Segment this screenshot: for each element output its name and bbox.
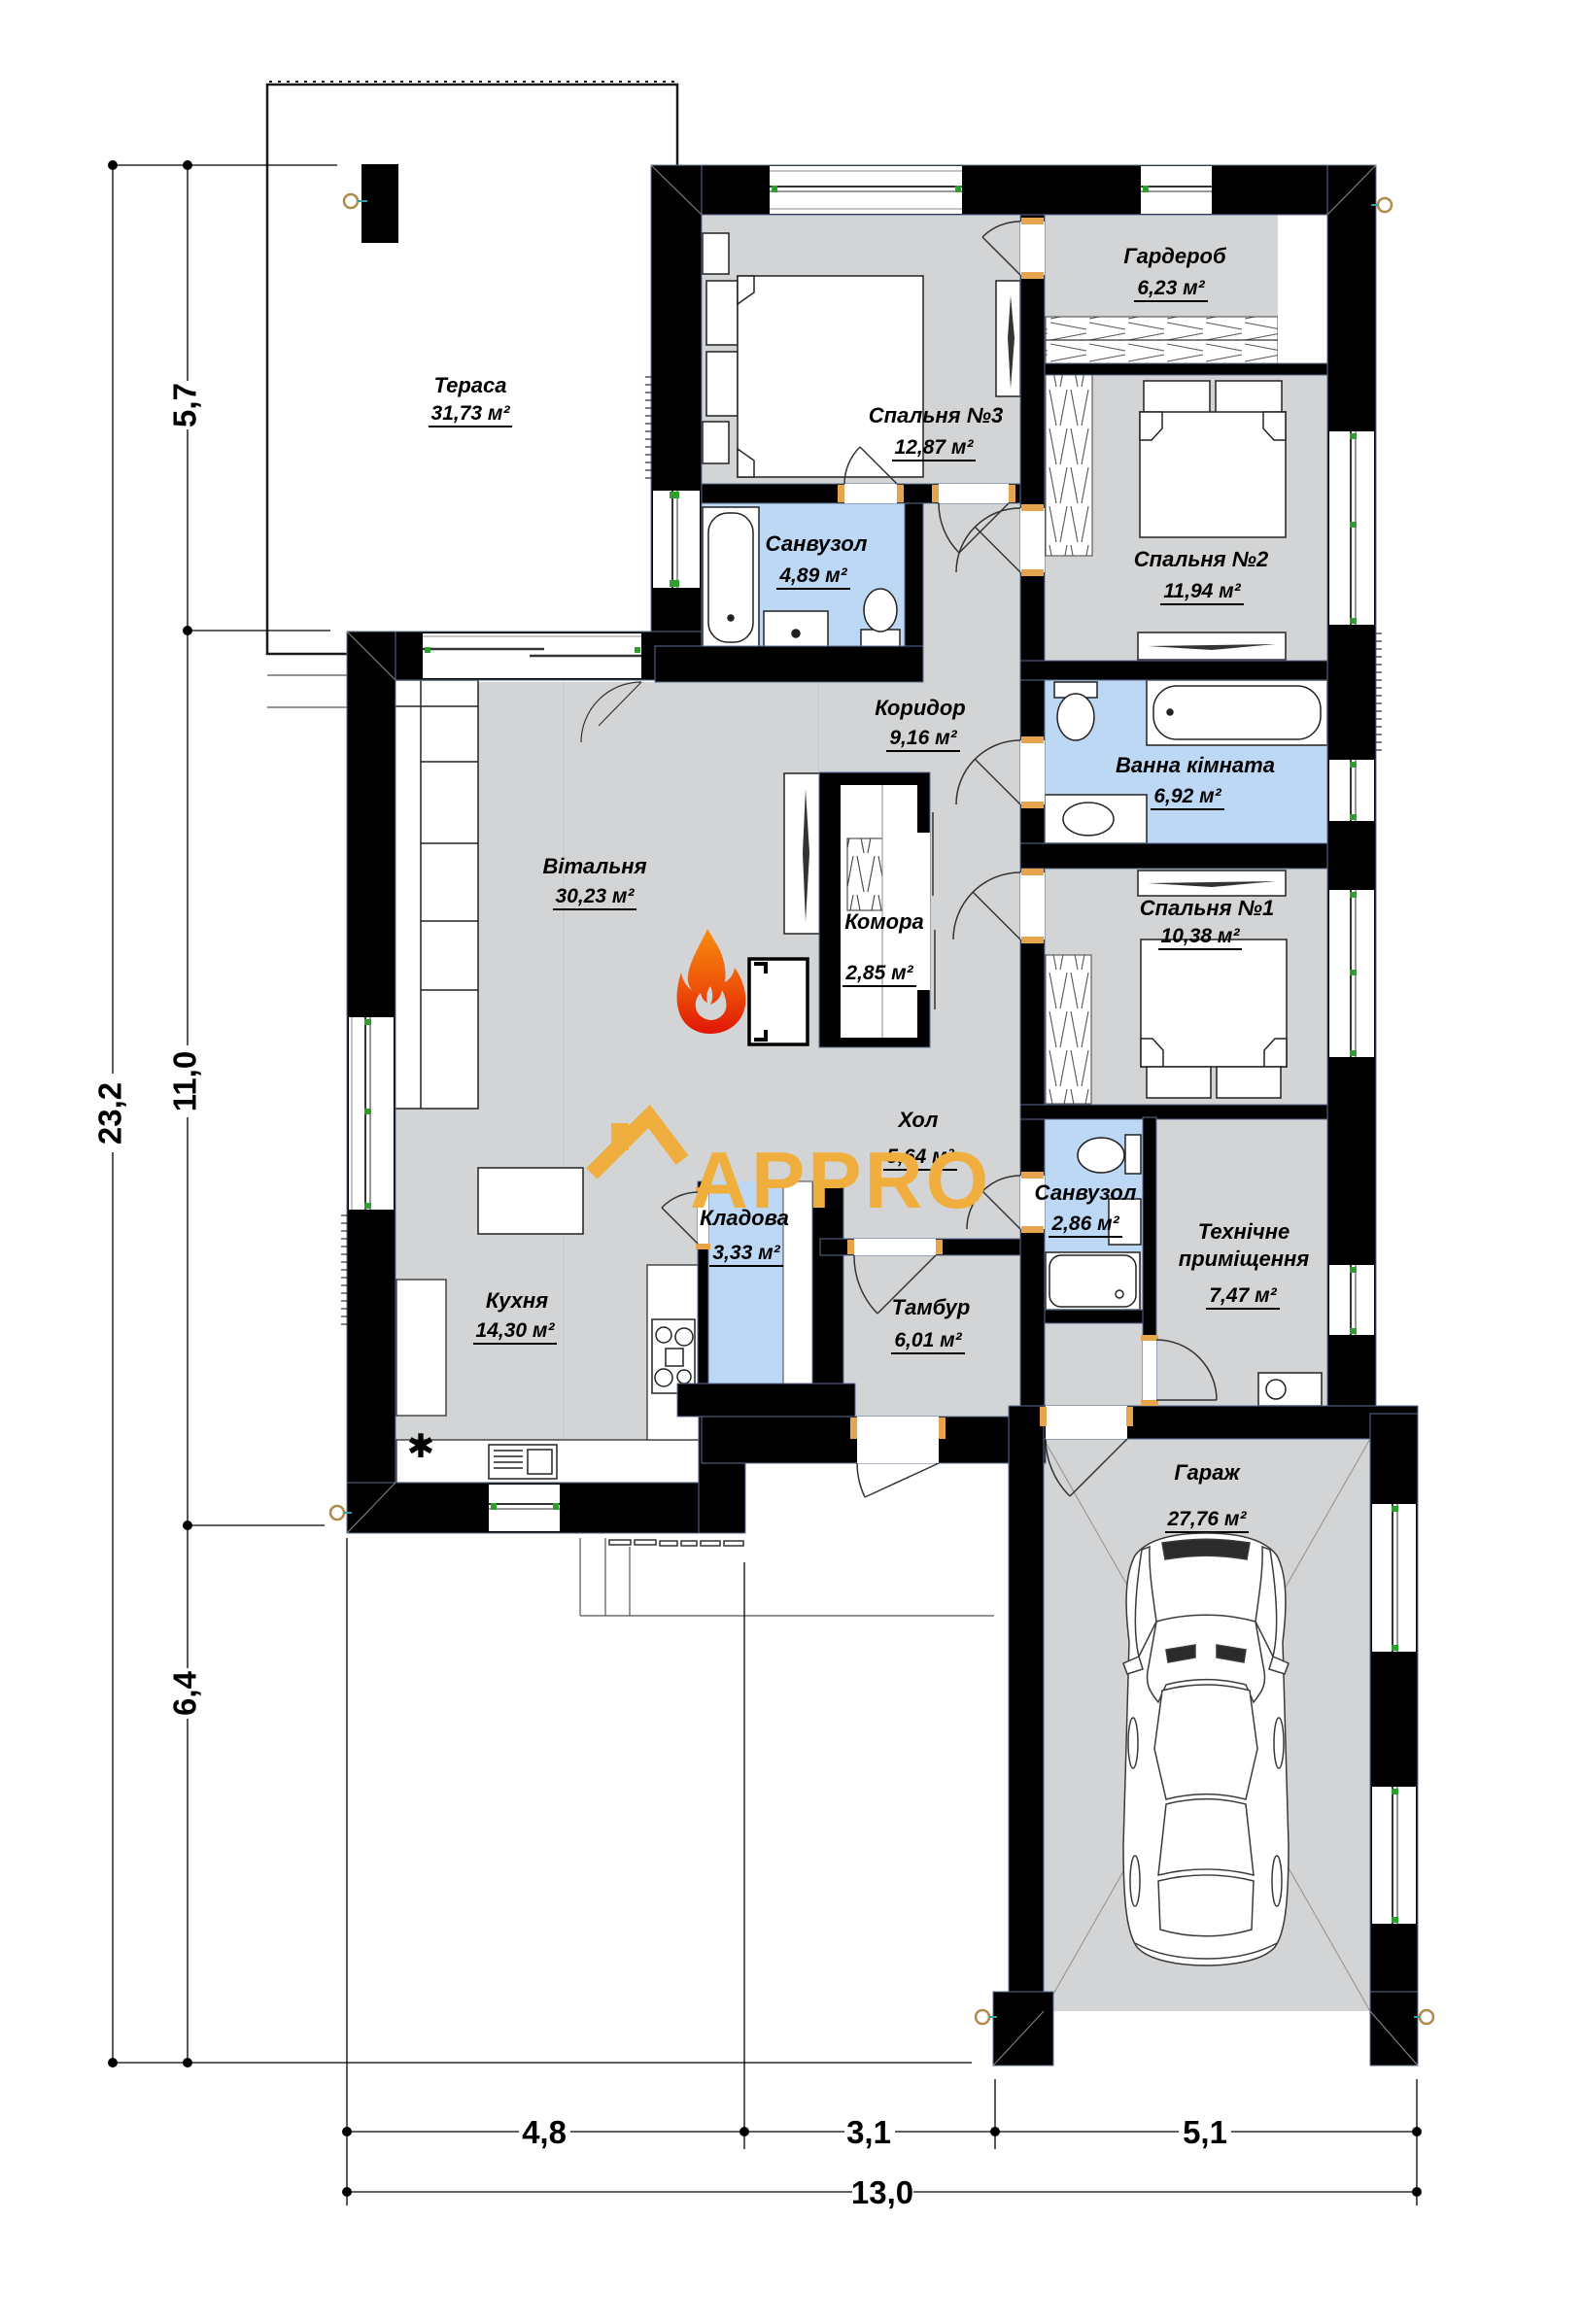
svg-text:3,1: 3,1 bbox=[846, 2114, 891, 2150]
svg-text:Тераса: Тераса bbox=[434, 373, 507, 397]
svg-text:Технічне: Технічне bbox=[1198, 1219, 1290, 1244]
svg-text:Спальня №1: Спальня №1 bbox=[1140, 896, 1274, 920]
svg-text:Ванна кімната: Ванна кімната bbox=[1116, 753, 1275, 777]
svg-text:11,94 м²: 11,94 м² bbox=[1163, 580, 1241, 602]
svg-text:Гараж: Гараж bbox=[1174, 1460, 1241, 1485]
svg-text:Спальня №2: Спальня №2 bbox=[1134, 547, 1269, 571]
svg-text:Кухня: Кухня bbox=[486, 1288, 548, 1313]
svg-text:Хол: Хол bbox=[897, 1108, 939, 1132]
svg-text:2,86 м²: 2,86 м² bbox=[1050, 1213, 1119, 1235]
svg-text:Санвузол: Санвузол bbox=[766, 531, 868, 556]
svg-text:6,92 м²: 6,92 м² bbox=[1153, 785, 1221, 807]
svg-text:9,16 м²: 9,16 м² bbox=[889, 727, 957, 749]
svg-text:12,87 м²: 12,87 м² bbox=[895, 436, 975, 459]
svg-text:6,4: 6,4 bbox=[167, 1670, 203, 1716]
svg-text:3,33 м²: 3,33 м² bbox=[712, 1242, 780, 1264]
svg-text:приміщення: приміщення bbox=[1179, 1247, 1310, 1271]
svg-text:Комора: Комора bbox=[844, 909, 924, 934]
svg-text:Тамбур: Тамбур bbox=[892, 1295, 971, 1319]
svg-text:Санвузол: Санвузол bbox=[1035, 1180, 1137, 1205]
svg-text:2,85 м²: 2,85 м² bbox=[844, 962, 913, 984]
svg-text:10,38 м²: 10,38 м² bbox=[1161, 925, 1241, 947]
svg-text:Коридор: Коридор bbox=[875, 696, 965, 720]
svg-text:13,0: 13,0 bbox=[851, 2174, 913, 2210]
svg-text:6,01 м²: 6,01 м² bbox=[894, 1329, 962, 1351]
svg-text:Вітальня: Вітальня bbox=[542, 854, 646, 878]
svg-text:30,23 м²: 30,23 м² bbox=[556, 885, 636, 907]
svg-text:7,47 м²: 7,47 м² bbox=[1209, 1284, 1277, 1307]
svg-text:23,2: 23,2 bbox=[92, 1082, 128, 1145]
svg-text:5,1: 5,1 bbox=[1183, 2114, 1227, 2150]
svg-text:27,76 м²: 27,76 м² bbox=[1167, 1508, 1248, 1530]
svg-text:Гардероб: Гардероб bbox=[1123, 244, 1227, 268]
svg-text:4,89 м²: 4,89 м² bbox=[778, 564, 847, 587]
svg-text:14,30 м²: 14,30 м² bbox=[476, 1319, 556, 1342]
svg-text:✱: ✱ bbox=[407, 1428, 435, 1465]
svg-text:31,73 м²: 31,73 м² bbox=[431, 402, 511, 425]
svg-text:APPRO: APPRO bbox=[690, 1135, 991, 1225]
svg-text:6,23 м²: 6,23 м² bbox=[1137, 277, 1205, 299]
svg-text:Спальня №3: Спальня №3 bbox=[869, 403, 1003, 427]
svg-text:11,0: 11,0 bbox=[167, 1051, 203, 1111]
svg-text:4,8: 4,8 bbox=[522, 2114, 567, 2150]
svg-text:5,7: 5,7 bbox=[167, 383, 203, 427]
